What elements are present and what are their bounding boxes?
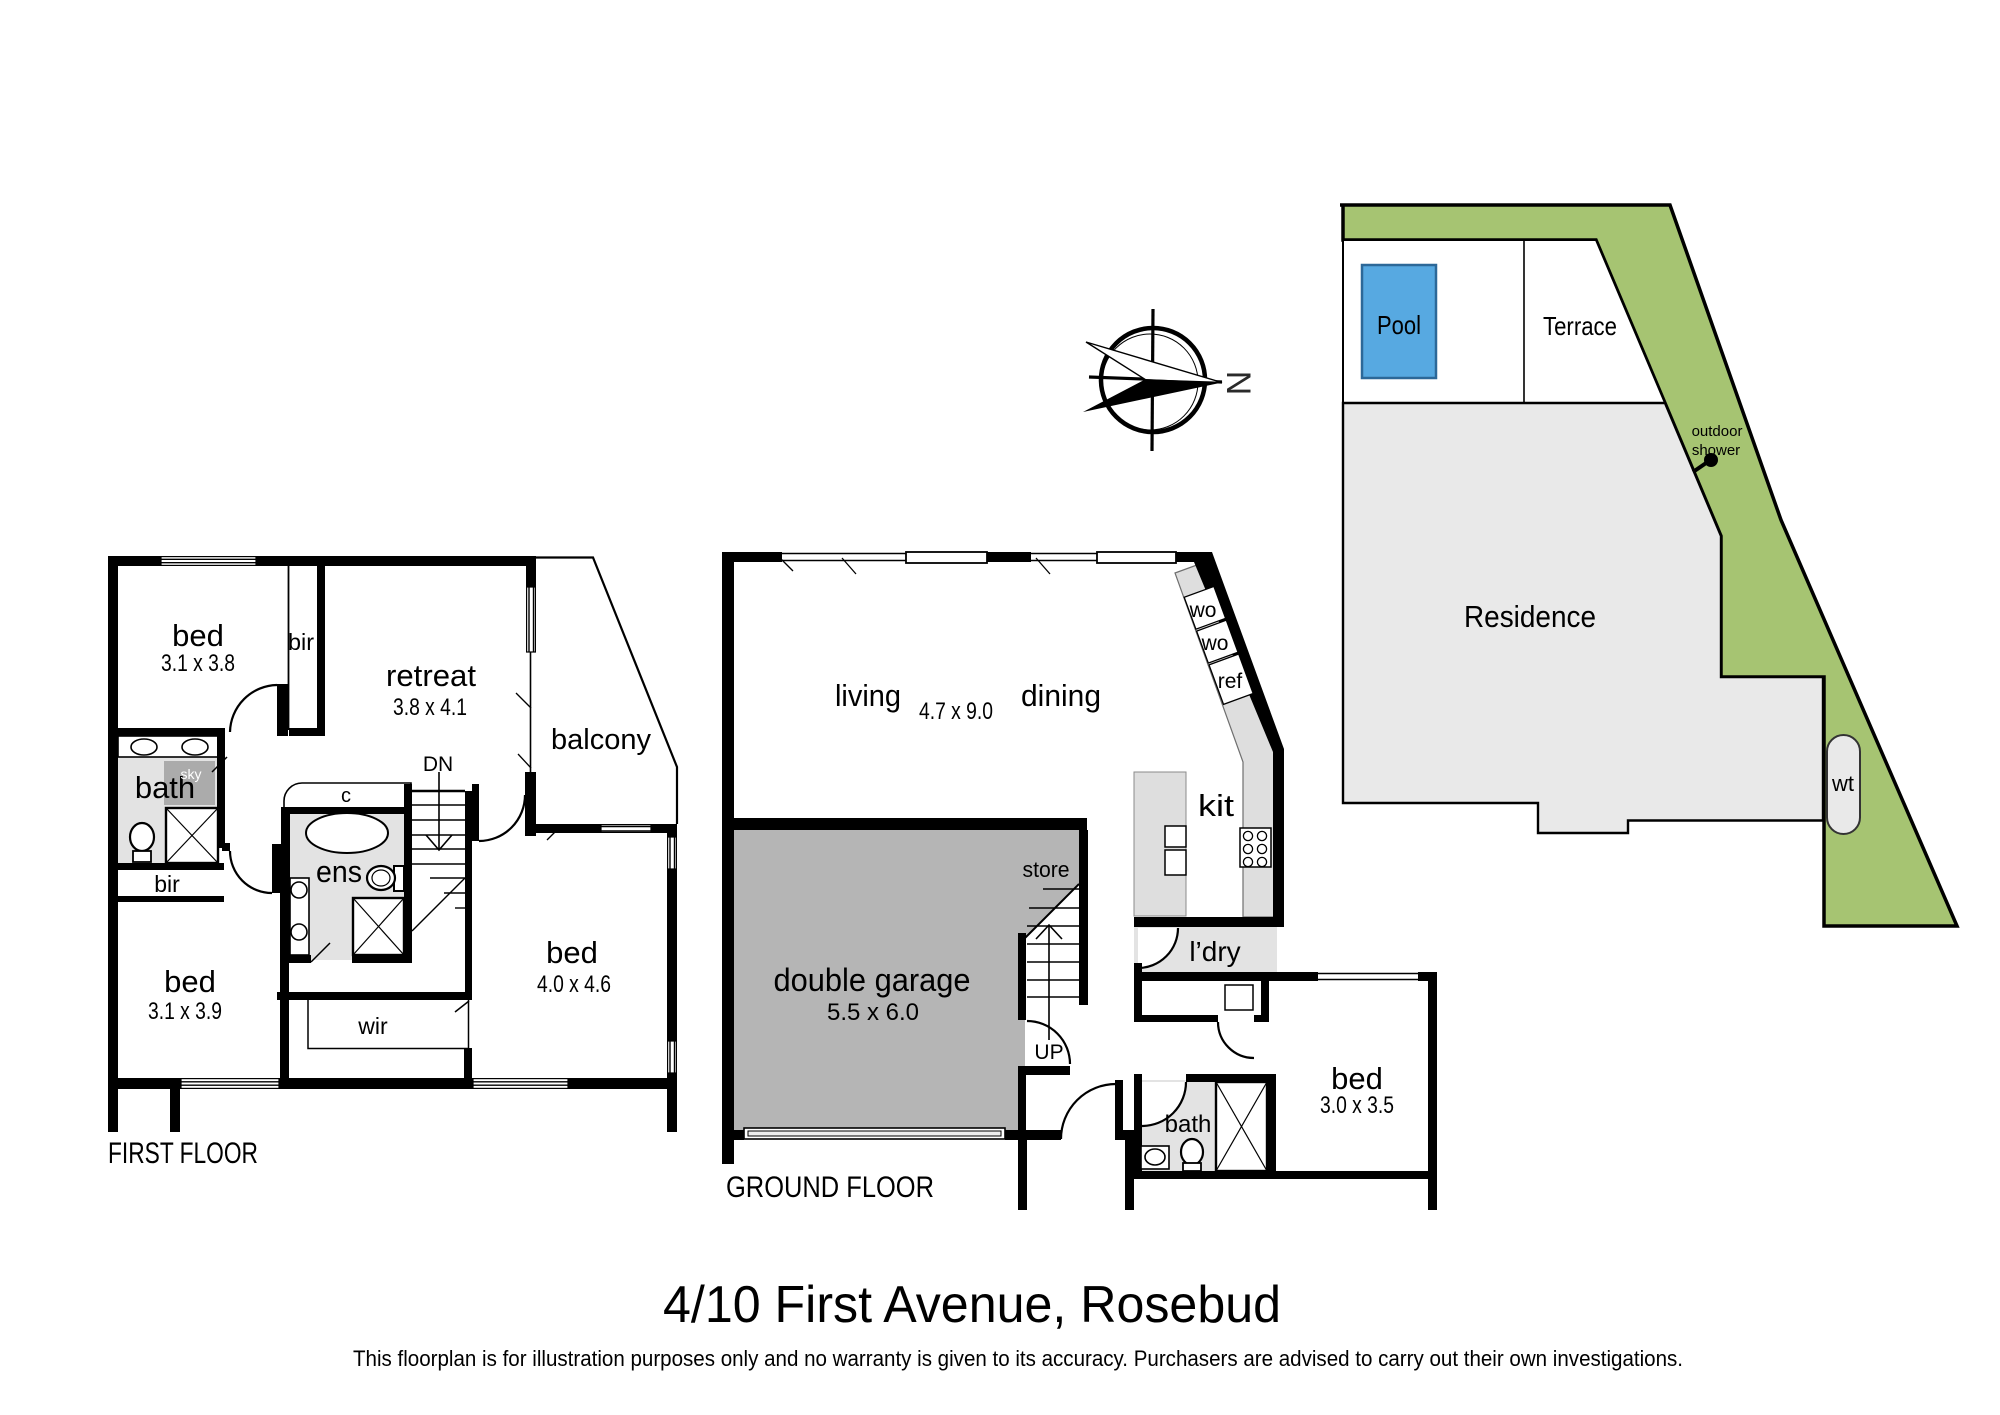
svg-text:wo: wo (1201, 632, 1229, 655)
svg-text:l’dry: l’dry (1189, 936, 1240, 967)
svg-text:wir: wir (357, 1013, 388, 1039)
svg-text:retreat: retreat (386, 658, 476, 693)
svg-text:store: store (1023, 857, 1070, 882)
svg-text:Residence: Residence (1464, 599, 1596, 634)
svg-text:sky: sky (181, 766, 202, 782)
svg-text:UP: UP (1034, 1041, 1063, 1064)
svg-text:4.7 x 9.0: 4.7 x 9.0 (919, 698, 993, 725)
svg-text:wo: wo (1189, 599, 1217, 622)
svg-text:bir: bir (154, 871, 180, 897)
svg-text:double garage: double garage (774, 962, 971, 998)
svg-text:bir: bir (288, 629, 314, 655)
svg-text:bath: bath (1165, 1111, 1212, 1138)
svg-text:3.0 x 3.5: 3.0 x 3.5 (1320, 1092, 1394, 1119)
svg-text:wt: wt (1831, 771, 1854, 796)
svg-text:5.5 x 6.0: 5.5 x 6.0 (827, 999, 919, 1026)
svg-text:3.1 x 3.8: 3.1 x 3.8 (161, 650, 235, 677)
svg-text:4/10 First Avenue, Rosebud: 4/10 First Avenue, Rosebud (663, 1276, 1281, 1334)
svg-text:bed: bed (172, 618, 224, 653)
svg-text:kit: kit (1198, 788, 1234, 823)
svg-text:ref: ref (1218, 670, 1243, 693)
svg-text:N: N (1219, 371, 1257, 396)
svg-text:bed: bed (1331, 1061, 1383, 1096)
svg-text:bed: bed (164, 964, 216, 999)
svg-text:dining: dining (1021, 678, 1101, 713)
svg-text:Terrace: Terrace (1543, 311, 1617, 341)
svg-text:outdoor: outdoor (1692, 423, 1743, 440)
svg-text:This floorplan is for illustra: This floorplan is for illustration purpo… (353, 1346, 1683, 1371)
svg-text:GROUND FLOOR: GROUND FLOOR (726, 1171, 934, 1204)
svg-text:bed: bed (546, 935, 598, 970)
svg-text:DN: DN (423, 753, 453, 776)
svg-text:4.0 x 4.6: 4.0 x 4.6 (537, 971, 611, 998)
svg-text:ens: ens (316, 854, 362, 889)
svg-text:balcony: balcony (551, 724, 651, 756)
svg-text:3.8 x 4.1: 3.8 x 4.1 (393, 694, 467, 721)
svg-text:living: living (835, 678, 901, 713)
svg-text:3.1 x 3.9: 3.1 x 3.9 (148, 998, 222, 1025)
svg-text:Pool: Pool (1377, 310, 1421, 340)
svg-text:c: c (341, 785, 351, 807)
svg-text:FIRST FLOOR: FIRST FLOOR (108, 1137, 258, 1170)
